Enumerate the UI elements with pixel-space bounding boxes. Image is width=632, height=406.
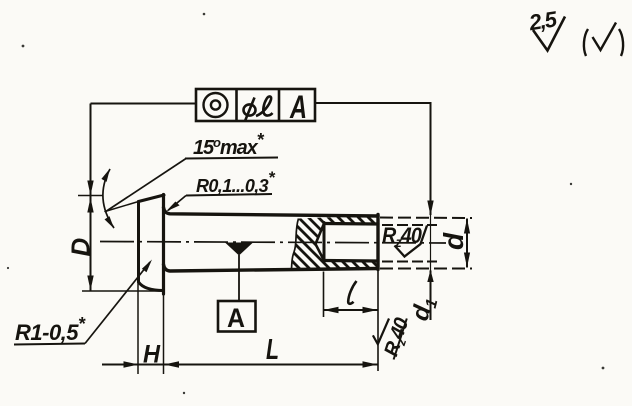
svg-text:A: A [289,89,307,125]
svg-text:d: d [438,232,469,250]
svg-text:A: A [227,303,245,333]
svg-text:H: H [143,341,161,369]
svg-text:L: L [266,334,279,366]
svg-text:D: D [66,238,96,257]
